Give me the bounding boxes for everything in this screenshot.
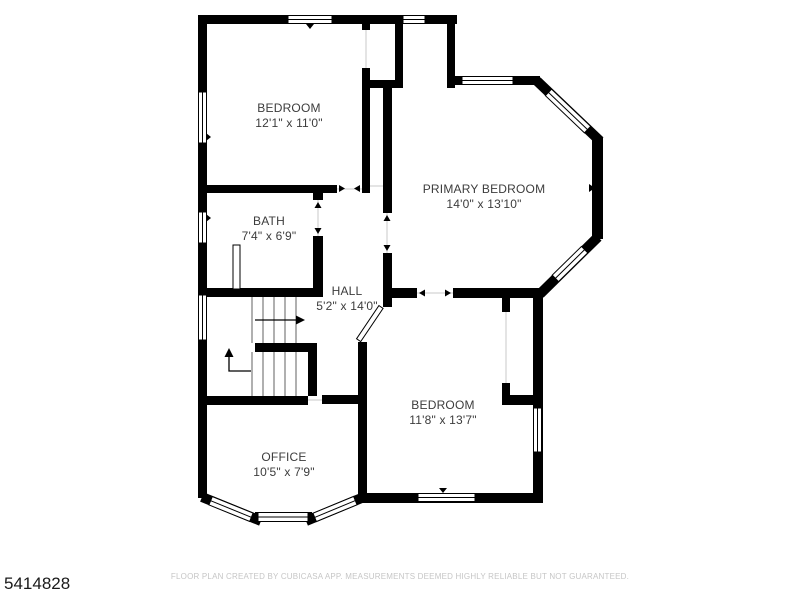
window-bedroom1-left [199,92,207,143]
room-label-primary-bedroom: PRIMARY BEDROOM 14'0" x 13'10" [423,182,546,212]
window-stairs-left [199,295,207,340]
window-bedroom2-bottom [418,494,475,502]
room-dimensions: 7'4" x 6'9" [242,229,297,244]
window-closet-top [403,16,425,24]
room-name: OFFICE [253,450,315,465]
window-bedroom1-top [288,16,332,24]
room-dimensions: 14'0" x 13'10" [423,197,546,212]
floor-plan-drawing [0,0,800,600]
room-label-office: OFFICE 10'5" x 7'9" [253,450,315,480]
footer-disclaimer: FLOOR PLAN CREATED BY CUBICASA APP. MEAS… [0,572,800,581]
room-dimensions: 10'5" x 7'9" [253,465,315,480]
window-primary-bay-lower [552,246,588,281]
room-dimensions: 12'1" x 11'0" [255,116,323,131]
floor-plan-page: BEDROOM 12'1" x 11'0" PRIMARY BEDROOM 14… [0,0,800,600]
room-name: HALL [316,284,378,299]
windows [199,16,591,522]
room-label-bath: BATH 7'4" x 6'9" [242,214,297,244]
shower-screen [233,245,240,289]
room-name: BATH [242,214,297,229]
walls [198,15,603,521]
room-name: BEDROOM [409,398,477,413]
door-openings [312,30,393,253]
window-office-bay-left [209,497,253,522]
room-label-bedroom-topleft: BEDROOM 12'1" x 11'0" [255,101,323,131]
window-office-bay-bottom [258,513,308,522]
window-bedroom2-right [534,408,542,452]
room-dimensions: 5'2" x 14'0" [316,299,378,314]
room-dimensions: 11'8" x 13'7" [409,413,477,428]
room-label-bedroom-bottomright: BEDROOM 11'8" x 13'7" [409,398,477,428]
room-name: BEDROOM [255,101,323,116]
window-primary-bay-upper [545,89,590,133]
room-label-hall: HALL 5'2" x 14'0" [316,284,378,314]
opening-lines [308,30,506,400]
plan-id: 5414828 [4,574,70,594]
room-name: PRIMARY BEDROOM [423,182,546,197]
window-bath-left [199,212,207,243]
window-office-bay-right [313,496,357,521]
window-primary-top [462,77,513,85]
